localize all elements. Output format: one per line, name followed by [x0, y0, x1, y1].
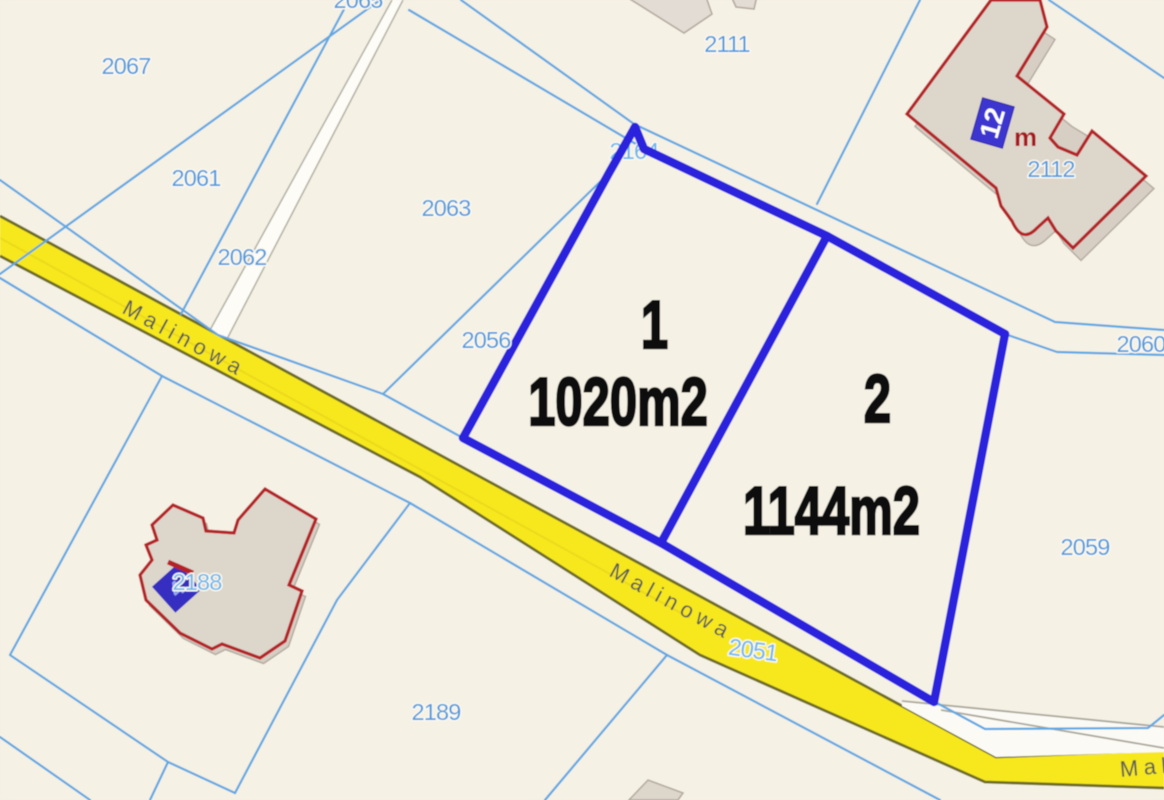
svg-text:2188: 2188 — [172, 569, 222, 595]
svg-text:2060: 2060 — [1116, 331, 1164, 357]
svg-text:2061: 2061 — [171, 165, 220, 191]
svg-text:2: 2 — [864, 360, 891, 437]
svg-text:2063: 2063 — [421, 195, 471, 221]
svg-text:2062: 2062 — [217, 244, 266, 270]
svg-text:2056: 2056 — [461, 327, 511, 353]
svg-text:1: 1 — [641, 286, 668, 363]
svg-text:2112: 2112 — [1027, 156, 1074, 182]
svg-text:m: m — [1014, 122, 1037, 152]
svg-text:1144m2: 1144m2 — [743, 472, 920, 549]
svg-text:2059: 2059 — [1060, 534, 1109, 560]
svg-text:2065: 2065 — [333, 0, 383, 13]
svg-text:1020m2: 1020m2 — [528, 363, 708, 440]
svg-text:2067: 2067 — [101, 53, 150, 79]
svg-text:2111: 2111 — [704, 31, 750, 57]
svg-text:2189: 2189 — [411, 699, 460, 725]
